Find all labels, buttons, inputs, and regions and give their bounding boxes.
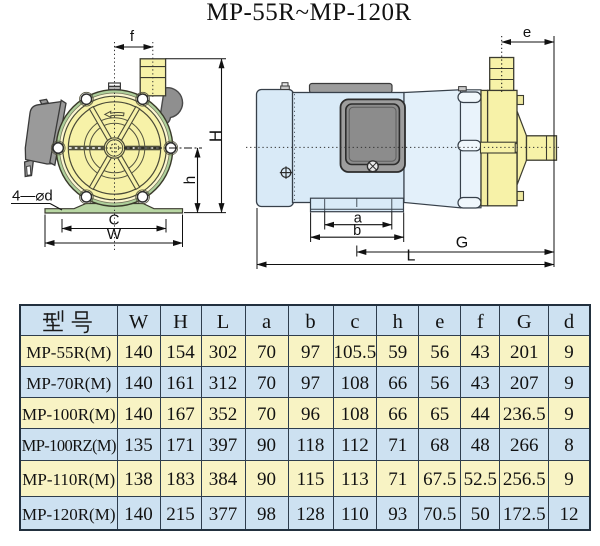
svg-text:4—⌀d: 4—⌀d <box>12 188 53 205</box>
svg-text:e: e <box>523 24 531 41</box>
svg-text:L: L <box>407 248 416 265</box>
svg-text:H: H <box>206 130 225 142</box>
svg-text:b: b <box>353 223 361 239</box>
svg-text:h: h <box>182 176 199 185</box>
svg-text:f: f <box>130 28 135 45</box>
svg-text:G: G <box>456 235 468 252</box>
svg-text:W: W <box>107 226 122 243</box>
